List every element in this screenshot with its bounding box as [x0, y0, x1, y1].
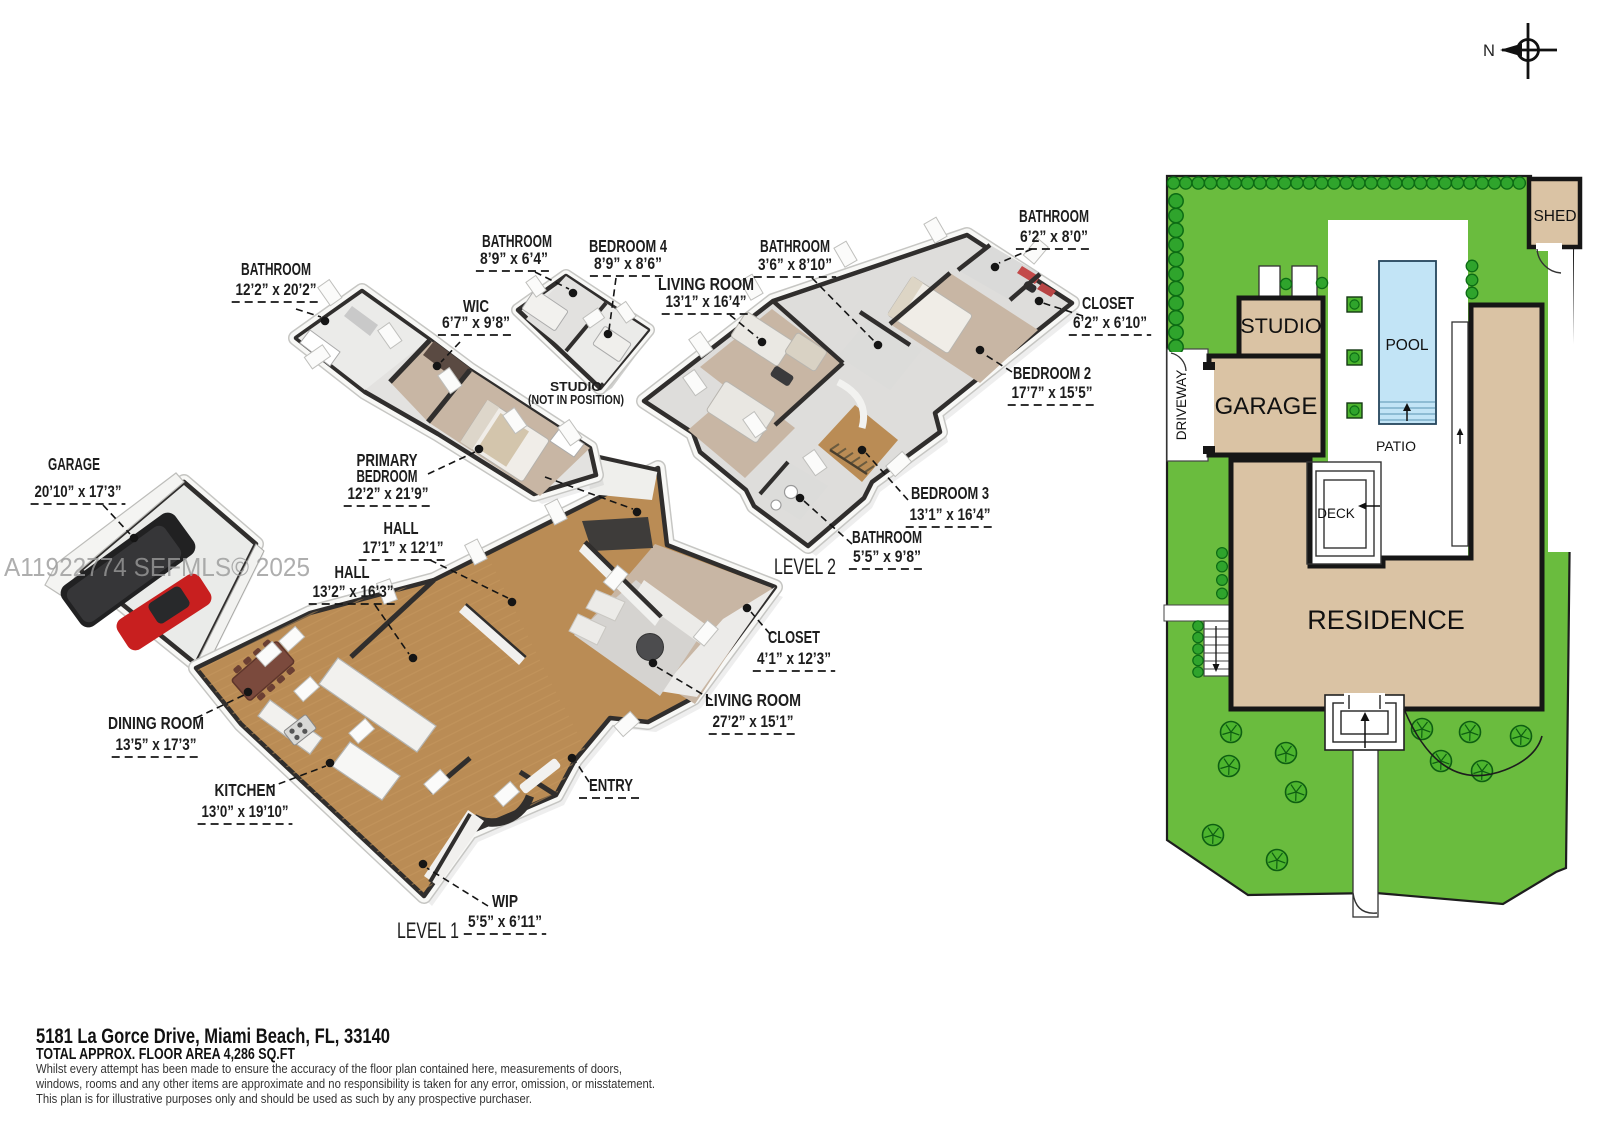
svg-text:13’1” x 16’4”: 13’1” x 16’4” [910, 506, 991, 524]
svg-text:BATHROOM: BATHROOM [852, 527, 922, 547]
svg-text:(NOT IN POSITION): (NOT IN POSITION) [528, 393, 624, 407]
svg-text:BEDROOM 3: BEDROOM 3 [911, 483, 989, 503]
svg-text:GARAGE: GARAGE [48, 454, 100, 474]
svg-text:8’9” x 6’4”: 8’9” x 6’4” [480, 250, 548, 268]
svg-text:SHED: SHED [1533, 208, 1576, 225]
svg-text:13’0” x 19’10”: 13’0” x 19’10” [202, 803, 289, 821]
svg-text:BEDROOM 4: BEDROOM 4 [589, 236, 667, 256]
svg-text:A11922774 SEFMLS© 2025: A11922774 SEFMLS© 2025 [4, 552, 310, 582]
svg-text:3’6” x 8’10”: 3’6” x 8’10” [758, 256, 832, 274]
svg-text:13’5” x 17’3”: 13’5” x 17’3” [116, 736, 197, 754]
svg-text:CLOSET: CLOSET [768, 627, 820, 647]
svg-text:6’2” x 8’0”: 6’2” x 8’0” [1020, 228, 1088, 246]
svg-text:LEVEL 2: LEVEL 2 [774, 554, 836, 579]
svg-text:LEVEL 1: LEVEL 1 [397, 918, 459, 943]
svg-text:13’1” x 16’4”: 13’1” x 16’4” [666, 293, 747, 311]
svg-text:13’2” x 16’3”: 13’2” x 16’3” [313, 583, 394, 601]
svg-text:BATHROOM: BATHROOM [1019, 206, 1089, 226]
svg-text:WIC: WIC [463, 296, 489, 316]
svg-text:BATHROOM: BATHROOM [760, 236, 830, 256]
svg-text:BEDROOM: BEDROOM [357, 466, 418, 486]
svg-text:12’2” x 21’9”: 12’2” x 21’9” [348, 485, 429, 503]
svg-text:LIVING ROOM: LIVING ROOM [705, 690, 801, 710]
svg-text:DRIVEWAY: DRIVEWAY [1174, 370, 1189, 441]
svg-text:HALL: HALL [335, 562, 370, 582]
svg-text:RESIDENCE: RESIDENCE [1307, 605, 1465, 635]
svg-text:5’5” x 9’8”: 5’5” x 9’8” [853, 548, 921, 566]
svg-text:5’5” x 6’11”: 5’5” x 6’11” [468, 913, 542, 931]
svg-text:CLOSET: CLOSET [1082, 293, 1134, 313]
svg-text:POOL: POOL [1385, 337, 1428, 354]
svg-text:BATHROOM: BATHROOM [482, 231, 552, 251]
svg-text:BEDROOM 2: BEDROOM 2 [1013, 363, 1091, 383]
svg-text:HALL: HALL [384, 518, 419, 538]
svg-text:LIVING ROOM: LIVING ROOM [658, 274, 754, 294]
svg-text:STUDIO: STUDIO [550, 380, 602, 394]
svg-text:6’7” x 9’8”: 6’7” x 9’8” [442, 314, 510, 332]
svg-text:This plan is for illustrative: This plan is for illustrative purposes o… [36, 1091, 532, 1106]
svg-text:6’2” x 6’10”: 6’2” x 6’10” [1073, 314, 1147, 332]
svg-text:8’9” x 8’6”: 8’9” x 8’6” [594, 255, 662, 273]
svg-text:ENTRY: ENTRY [589, 775, 633, 795]
svg-text:windows, rooms and any other i: windows, rooms and any other items are a… [35, 1076, 655, 1091]
svg-text:N: N [1483, 42, 1495, 60]
svg-text:PATIO: PATIO [1376, 438, 1416, 454]
svg-text:WIP: WIP [492, 891, 518, 911]
svg-text:DINING ROOM: DINING ROOM [108, 713, 204, 733]
svg-text:5181 La Gorce Drive, Miami Bea: 5181 La Gorce Drive, Miami Beach, FL, 33… [36, 1024, 390, 1048]
svg-text:20’10” x 17’3”: 20’10” x 17’3” [35, 483, 122, 501]
svg-text:KITCHEN: KITCHEN [215, 780, 276, 800]
svg-text:17’1” x 12’1”: 17’1” x 12’1” [363, 539, 444, 557]
svg-text:17’7” x 15’5”: 17’7” x 15’5” [1012, 384, 1093, 402]
svg-text:STUDIO: STUDIO [1240, 314, 1321, 338]
svg-text:Whilst every attempt has been: Whilst every attempt has been made to en… [36, 1061, 622, 1076]
svg-text:12’2” x 20’2”: 12’2” x 20’2” [236, 281, 317, 299]
svg-text:4’1” x 12’3”: 4’1” x 12’3” [757, 650, 831, 668]
svg-text:GARAGE: GARAGE [1215, 393, 1318, 420]
svg-text:DECK: DECK [1317, 506, 1355, 521]
svg-text:27’2” x 15’1”: 27’2” x 15’1” [713, 713, 794, 731]
svg-text:BATHROOM: BATHROOM [241, 259, 311, 279]
